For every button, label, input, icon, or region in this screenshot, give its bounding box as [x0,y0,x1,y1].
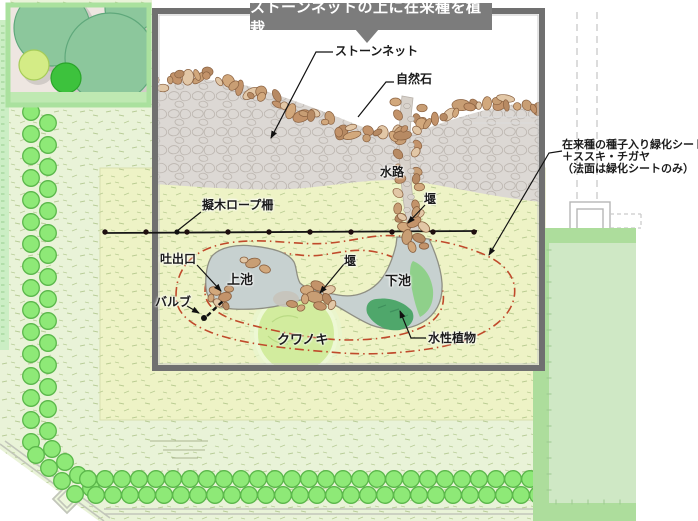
planting-block [6,0,161,109]
label-rope-fence: 擬木ロープ柵 [202,199,273,211]
label-upper-pond: 上池 [227,274,253,287]
label-weir-mid: 堰 [344,255,356,267]
seed-sheet-note-line3: （法面は緑化シートのみ） [562,163,698,175]
valve-dot [201,315,207,321]
label-outlet: 吐出口 [160,253,196,265]
banner-pointer [355,29,379,43]
site-plan: ストーンネットの上に在来種を植栽 ストーンネット 自然石 水路 堰 擬木ロープ柵… [0,0,698,521]
small-tree-green [51,63,81,93]
label-stone-net: ストーンネット [335,45,418,57]
panel-contents [149,11,546,380]
banner-title: ストーンネットの上に在来種を植栽 [250,3,492,30]
label-natural-stone: 自然石 [396,73,432,85]
label-mulberry-tree: クワノキ [277,334,328,347]
label-aquatic-plants: 水性植物 [428,332,476,344]
large-tree [65,13,155,103]
right-green-block [533,228,636,521]
label-valve: バルブ [155,296,191,308]
label-waterway: 水路 [380,166,404,178]
right-structure [570,12,641,242]
label-lower-pond: 下池 [385,275,411,288]
label-weir-top: 堰 [424,193,436,205]
fence-leader-dot [174,229,179,234]
small-tree-yellow [19,50,49,80]
seed-sheet-note: 在来種の種子入り緑化シート ＋ススキ・チガヤ （法面は緑化シートのみ） [562,139,698,175]
